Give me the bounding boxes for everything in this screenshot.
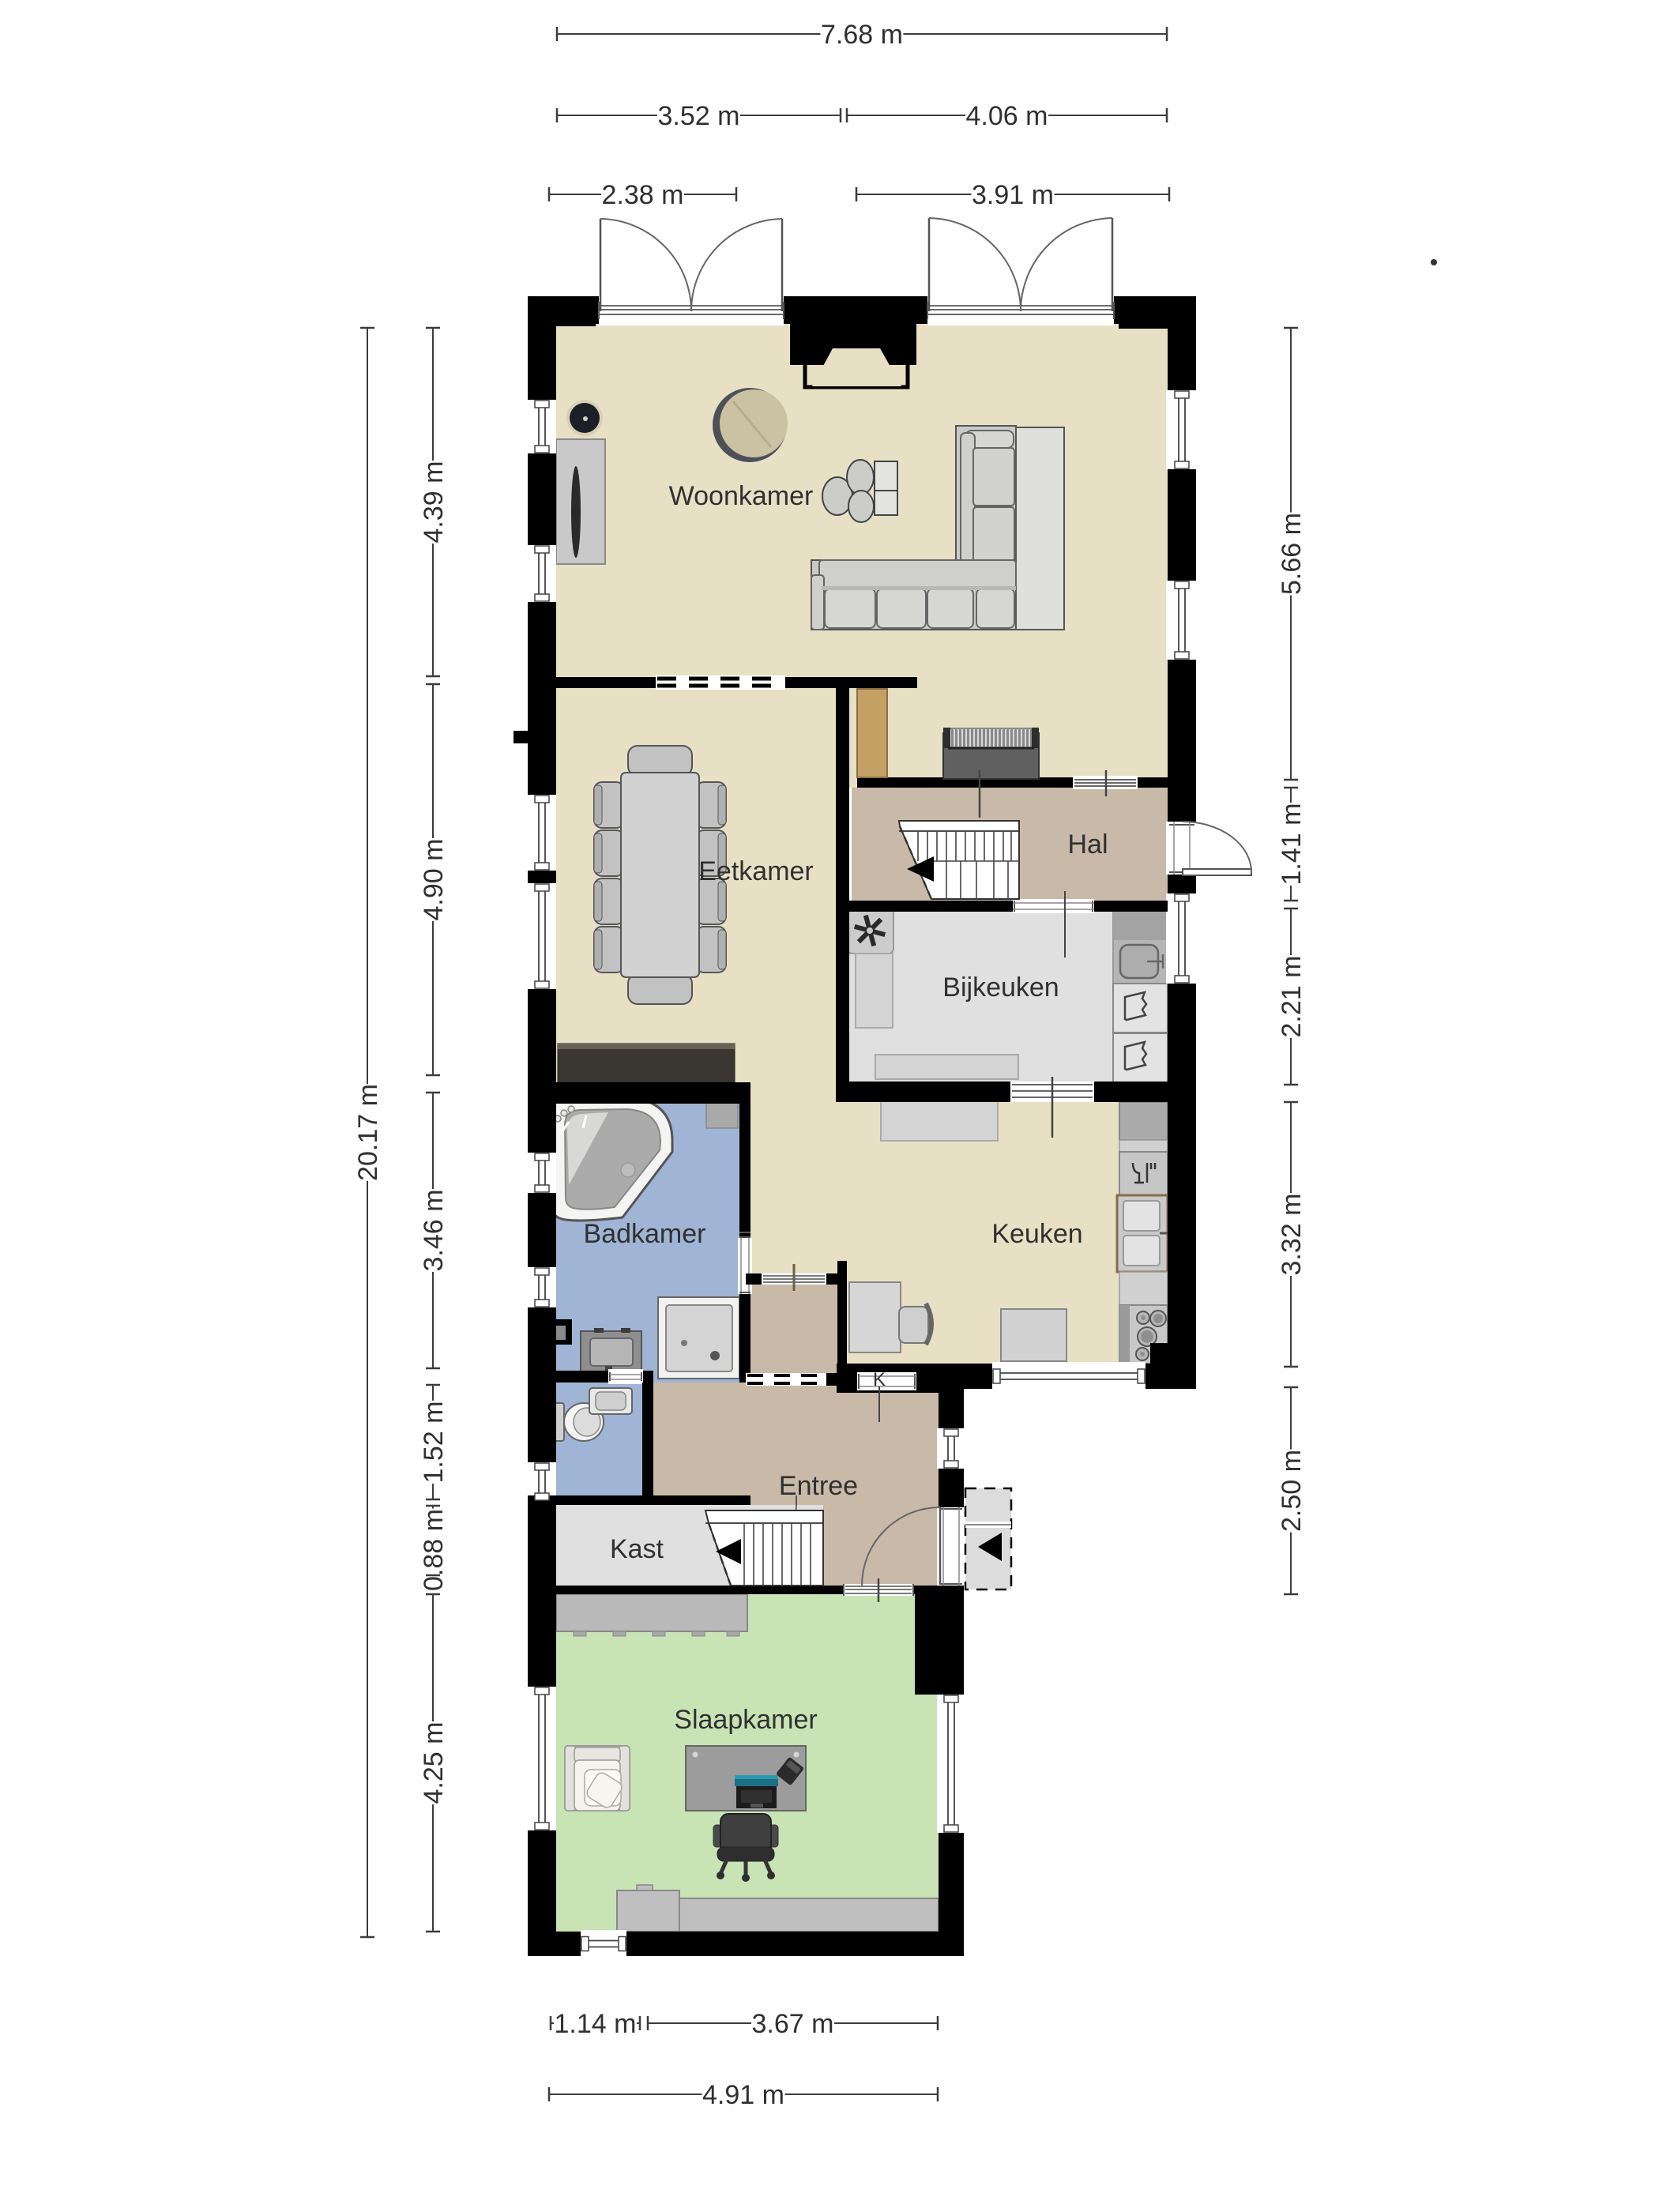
svg-text:3.32 m: 3.32 m xyxy=(1277,1194,1307,1276)
svg-text:Slaapkamer: Slaapkamer xyxy=(674,1705,817,1735)
svg-text:3.52 m: 3.52 m xyxy=(658,101,740,131)
svg-text:2.21 m: 2.21 m xyxy=(1277,956,1307,1038)
svg-text:2.50 m: 2.50 m xyxy=(1277,1450,1307,1532)
svg-text:4.06 m: 4.06 m xyxy=(966,101,1048,131)
svg-text:20.17 m: 20.17 m xyxy=(353,1084,383,1181)
svg-text:1.41 m: 1.41 m xyxy=(1277,803,1307,886)
svg-text:Keuken: Keuken xyxy=(991,1219,1082,1249)
svg-text:2.38 m: 2.38 m xyxy=(602,180,684,210)
svg-text:1.14 m: 1.14 m xyxy=(555,2009,637,2039)
svg-text:3.91 m: 3.91 m xyxy=(972,180,1054,210)
svg-text:Kast: Kast xyxy=(610,1534,664,1564)
svg-text:4.90 m: 4.90 m xyxy=(419,839,449,921)
svg-text:Badkamer: Badkamer xyxy=(584,1219,706,1249)
svg-text:4.25 m: 4.25 m xyxy=(419,1722,449,1804)
svg-text:Bijkeuken: Bijkeuken xyxy=(942,972,1059,1003)
svg-text:K: K xyxy=(873,1369,886,1390)
svg-text:4.91 m: 4.91 m xyxy=(702,2080,784,2110)
svg-text:1.52 m: 1.52 m xyxy=(419,1401,449,1484)
svg-text:Hal: Hal xyxy=(1067,829,1108,860)
svg-text:Entree: Entree xyxy=(779,1471,858,1501)
svg-text:7.68 m: 7.68 m xyxy=(821,20,903,50)
svg-text:Woonkamer: Woonkamer xyxy=(669,481,814,511)
svg-text:Eetkamer: Eetkamer xyxy=(698,856,814,886)
svg-text:5.66 m: 5.66 m xyxy=(1277,513,1307,595)
svg-text:3.67 m: 3.67 m xyxy=(752,2009,834,2039)
svg-text:3.46 m: 3.46 m xyxy=(419,1190,449,1272)
svg-text:4.39 m: 4.39 m xyxy=(419,461,449,544)
svg-text:0.88 m: 0.88 m xyxy=(419,1509,449,1591)
